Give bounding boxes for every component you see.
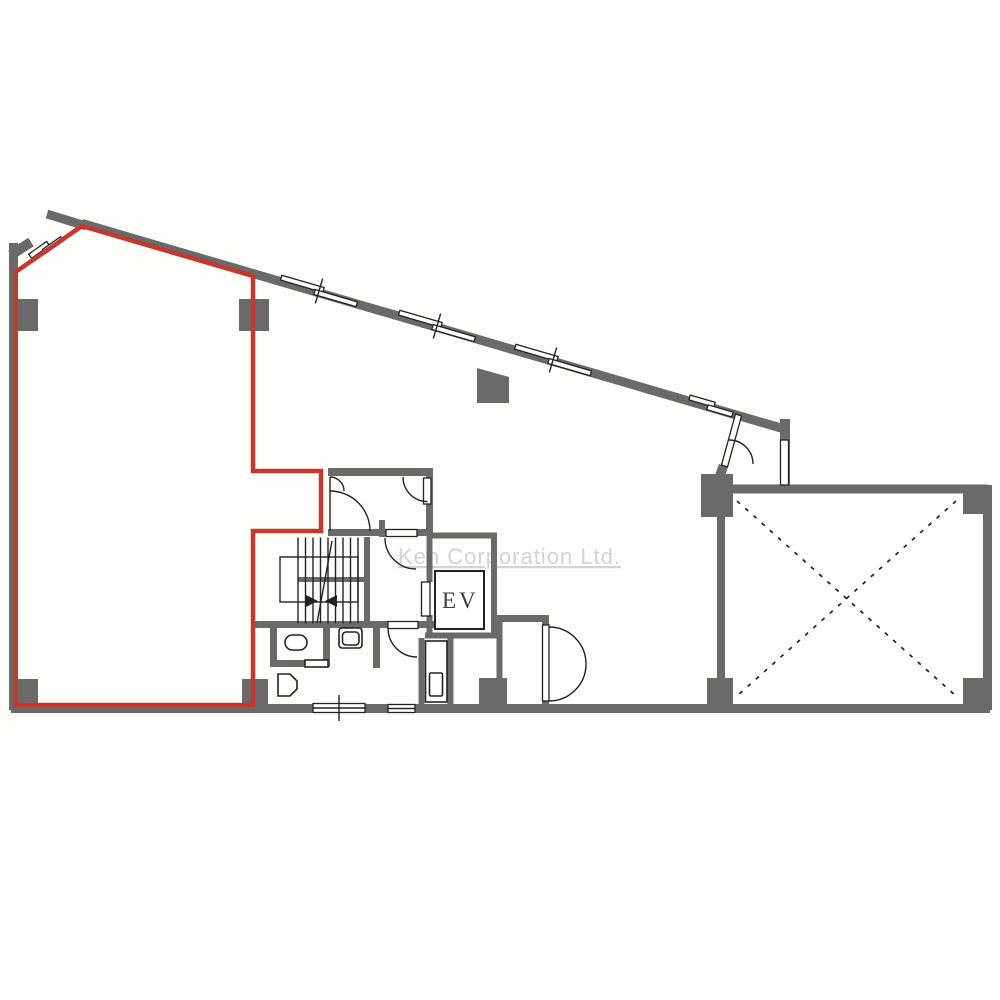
hand-basin xyxy=(339,628,362,648)
window-south-2 xyxy=(388,705,415,713)
column xyxy=(963,491,985,514)
window-north-3 xyxy=(511,336,595,383)
toilet xyxy=(285,635,307,650)
urinal xyxy=(278,674,297,696)
column xyxy=(963,678,985,706)
window-north-2 xyxy=(395,302,479,349)
interior-walls xyxy=(255,468,549,706)
elevator-door xyxy=(422,582,431,616)
door-restroom xyxy=(388,622,418,658)
void-diagonal-2 xyxy=(737,501,956,696)
column xyxy=(479,678,507,706)
door-vestibule-west xyxy=(330,477,370,531)
windows xyxy=(29,233,789,721)
door-vestibule-north xyxy=(403,477,431,504)
wall-northwest-stub xyxy=(47,214,86,226)
elevator: EV xyxy=(435,571,484,629)
floor-plan: Ken Corporation Ltd. xyxy=(0,0,1000,1000)
service-closet-fixture xyxy=(426,641,448,702)
freestanding-column xyxy=(477,368,509,403)
stair-arrow-right xyxy=(306,595,318,607)
window-east xyxy=(781,440,789,485)
double-door-storeroom xyxy=(543,625,587,701)
stair-arrow-left xyxy=(325,595,337,607)
window-north-1 xyxy=(277,267,361,314)
wc-counter xyxy=(305,660,328,667)
floor-plan-page: Ken Corporation Ltd. xyxy=(0,0,1000,1000)
void-cross-marks xyxy=(737,501,956,696)
window-south-1 xyxy=(313,695,365,721)
elevator-label: EV xyxy=(442,588,479,613)
column xyxy=(707,678,733,706)
